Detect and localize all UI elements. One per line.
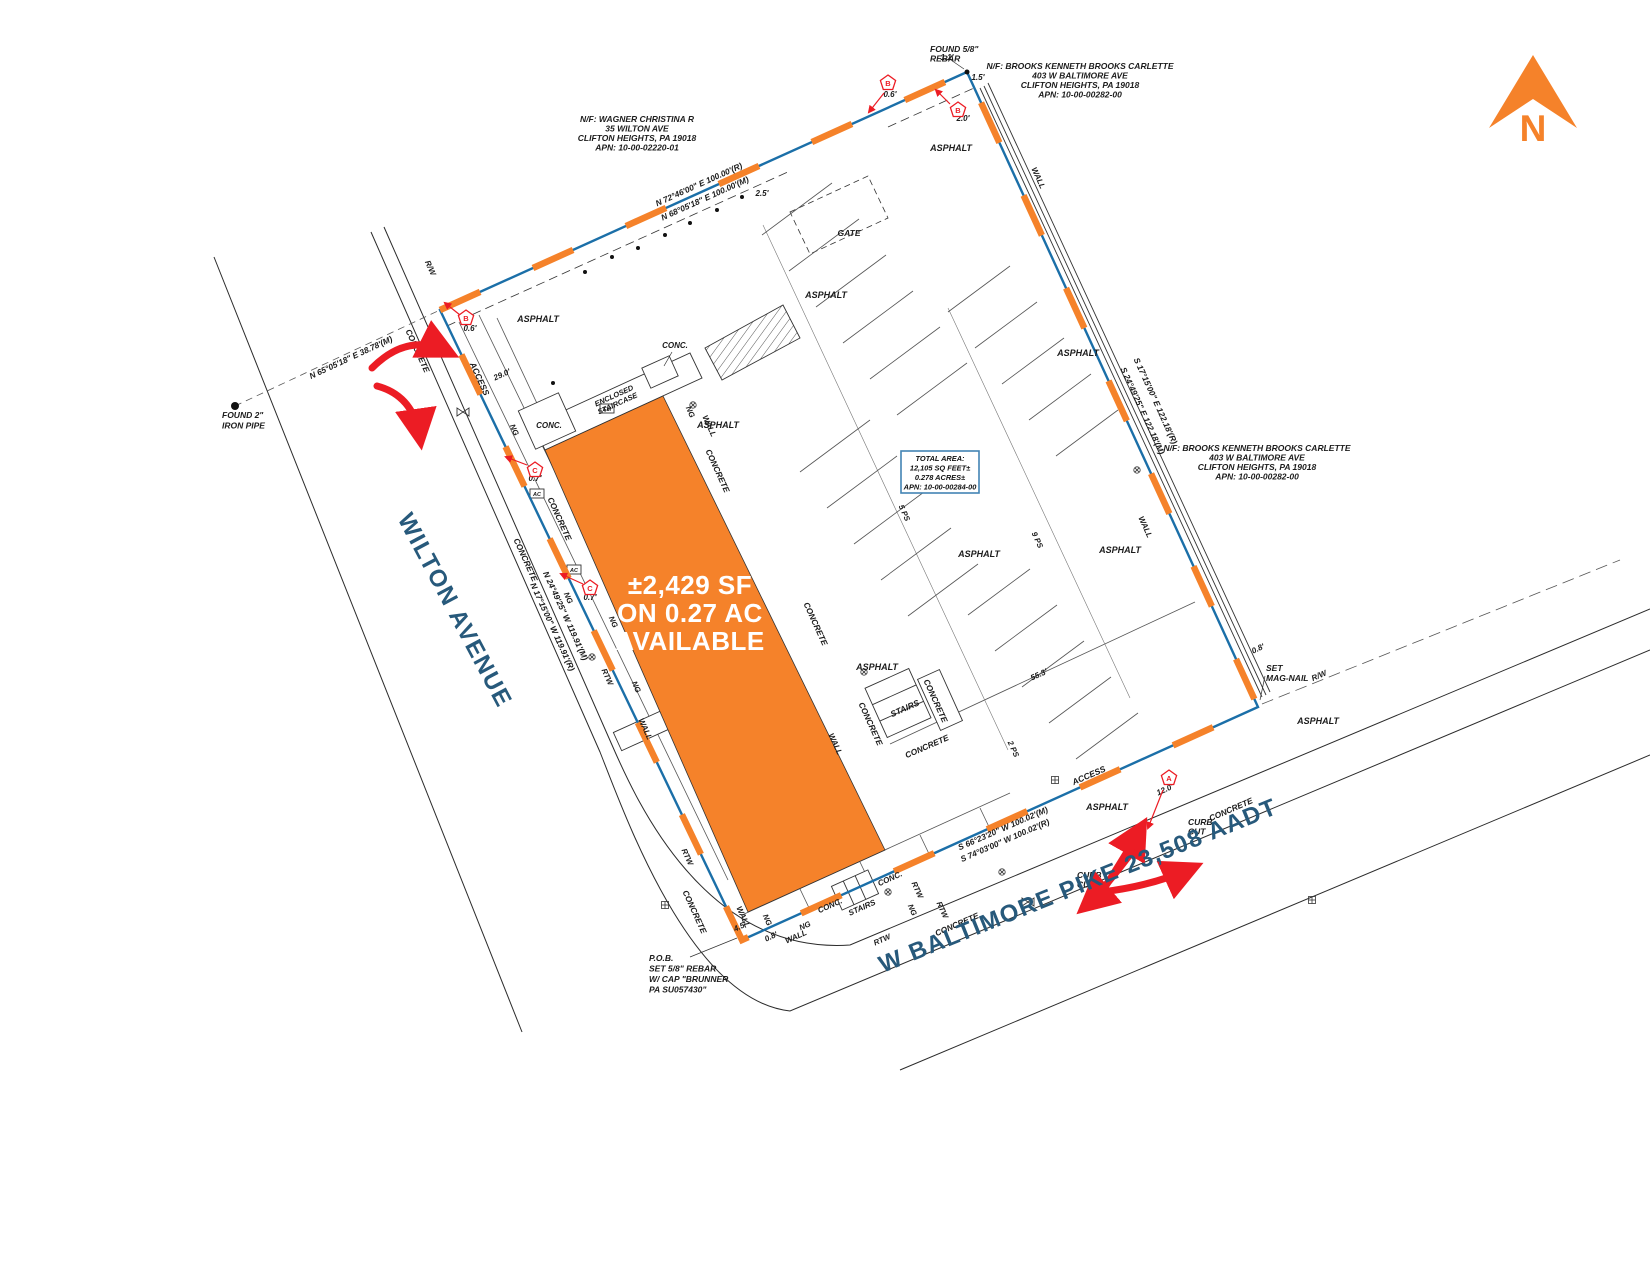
pentagon-marker-b: B	[458, 310, 473, 324]
asphalt-2: ASPHALT	[516, 314, 560, 324]
pentagon-marker-a: A	[1161, 770, 1176, 784]
pentagon-marker-c: C	[527, 462, 542, 476]
neighbor-brooks-north: N/F: BROOKS KENNETH BROOKS CARLETTE403 W…	[987, 61, 1174, 100]
fence-post-dot	[551, 381, 555, 385]
em-meter: EM	[603, 407, 612, 413]
north-arrow: N	[1489, 55, 1577, 149]
dim-29-0: 29.0'	[491, 367, 513, 383]
fence-post-dot	[715, 208, 719, 212]
dim-1-1: 1.1'	[940, 53, 954, 62]
inlet-square-icon	[1052, 777, 1059, 784]
asphalt-10: ASPHALT	[1296, 716, 1340, 726]
fence-post-dot	[583, 270, 587, 274]
iron-pipe-dot	[231, 402, 239, 410]
dim-2-5: 2.5'	[754, 189, 769, 198]
rw-line-east	[1262, 560, 1620, 704]
available-acres: ON 0.27 AC	[617, 598, 763, 628]
valve-bowtie-icon	[457, 408, 469, 416]
asphalt-8: ASPHALT	[855, 662, 899, 672]
wall-2: WALL	[1136, 515, 1154, 539]
utility-circle-icon	[885, 889, 891, 895]
access-arrow-west-out	[377, 386, 420, 438]
asphalt-4: ASPHALT	[1056, 348, 1100, 358]
fence-post-dot	[610, 255, 614, 259]
svg-text:B: B	[463, 314, 469, 323]
concrete-m2: CONCRETE	[802, 600, 831, 647]
ng-1: NG	[508, 423, 521, 437]
rw-west: R/W	[423, 259, 438, 278]
set-mag-nail: SETMAG-NAIL	[1266, 663, 1309, 683]
asphalt-3: ASPHALT	[804, 290, 848, 300]
site-plan-svg: ±2,429 SF ON 0.27 AC AVAILABLE TOTAL ARE…	[0, 0, 1650, 1275]
svg-text:C: C	[532, 466, 538, 475]
svg-text:A: A	[1166, 774, 1172, 783]
asphalt-7: ASPHALT	[1098, 545, 1142, 555]
found-rebar-label: FOUND 5/8"REBAR	[930, 44, 979, 64]
access-arrow-west-in	[372, 345, 448, 368]
dim-0-8-se: 0.8'	[1250, 641, 1267, 655]
hatched-canopy	[705, 305, 800, 380]
svg-text:B: B	[955, 106, 961, 115]
asphalt-1: ASPHALT	[929, 143, 973, 153]
available-word: AVAILABLE	[615, 626, 764, 656]
asphalt-9: ASPHALT	[1085, 802, 1129, 812]
concrete-w1: CONCRETE	[404, 327, 433, 374]
parking-5ps: 5 PS	[897, 503, 913, 523]
total-area-box: TOTAL AREA: 12,105 SQ FEET± 0.278 ACRES±…	[901, 451, 979, 493]
pob-note: P.O.B.SET 5/8" REBARW/ CAP "BRUNNERPA SU…	[649, 953, 729, 995]
ng-5: NG	[630, 680, 643, 694]
concrete-sw: CONCRETE	[681, 888, 710, 935]
total-area-sqft: 12,105 SQ FEET±	[910, 464, 971, 473]
gate-outline	[790, 176, 888, 254]
fence-post-dot	[688, 221, 692, 225]
site-plan-page: ±2,429 SF ON 0.27 AC AVAILABLE TOTAL ARE…	[0, 0, 1650, 1275]
svg-text:B: B	[885, 79, 891, 88]
total-area-title: TOTAL AREA:	[916, 454, 966, 463]
rebar-dot	[965, 70, 970, 75]
dim-0-8-sw: 0.8'	[763, 929, 780, 943]
fence-lines	[447, 88, 974, 326]
dim-0-6-north: 0.6'	[883, 90, 897, 99]
available-sf: ±2,429 SF	[628, 570, 752, 600]
conc-2: CONC.	[662, 341, 688, 350]
fence-post-dot	[636, 246, 640, 250]
ng-6: NG	[761, 913, 774, 927]
neighbor-wagner: N/F: WAGNER CHRISTINA R35 WILTON AVECLIF…	[578, 114, 697, 153]
neighbor-brooks-east: N/F: BROOKS KENNETH BROOKS CARLETTE403 W…	[1164, 443, 1351, 482]
fence-post-dot	[740, 195, 744, 199]
utility-circle-icon	[1134, 467, 1140, 473]
east-wall-lines	[980, 83, 1270, 697]
rtw-3: RTW	[910, 880, 926, 900]
north-arrow-letter: N	[1520, 108, 1547, 149]
dim-0-6-west: 0.6'	[463, 324, 477, 333]
concrete-s1: CONCRETE	[903, 732, 950, 760]
ac-unit-2: AC	[569, 568, 579, 574]
fence-post-dot	[663, 233, 667, 237]
total-area-acres: 0.278 ACRES±	[915, 473, 966, 482]
svg-text:C: C	[587, 584, 593, 593]
found-iron-pipe: FOUND 2"IRON PIPE	[222, 410, 265, 431]
conc-1: CONC.	[536, 421, 562, 430]
pentagon-marker-b: B	[950, 102, 965, 116]
pentagon-marker-b: B	[880, 75, 895, 89]
parking-9ps: 9 PS	[1030, 530, 1046, 550]
street-wilton-avenue: WILTON AVENUE	[392, 509, 517, 712]
reference-dashed-lines	[235, 310, 1620, 704]
asphalt-6: ASPHALT	[957, 549, 1001, 559]
street-baltimore-pike: W BALTIMORE PIKE 23,508 AADT	[875, 793, 1281, 978]
rtw-4: RTW	[935, 900, 951, 920]
total-area-apn: APN: 10-00-00284-00	[903, 483, 978, 492]
utility-circle-icon	[999, 869, 1005, 875]
ng-8: NG	[906, 903, 919, 917]
gate-label: GATE	[838, 228, 861, 238]
ac-unit-1: AC	[532, 492, 542, 498]
wilton-curb-outer	[371, 232, 1650, 1011]
dim-1-5: 1.5'	[971, 73, 985, 82]
